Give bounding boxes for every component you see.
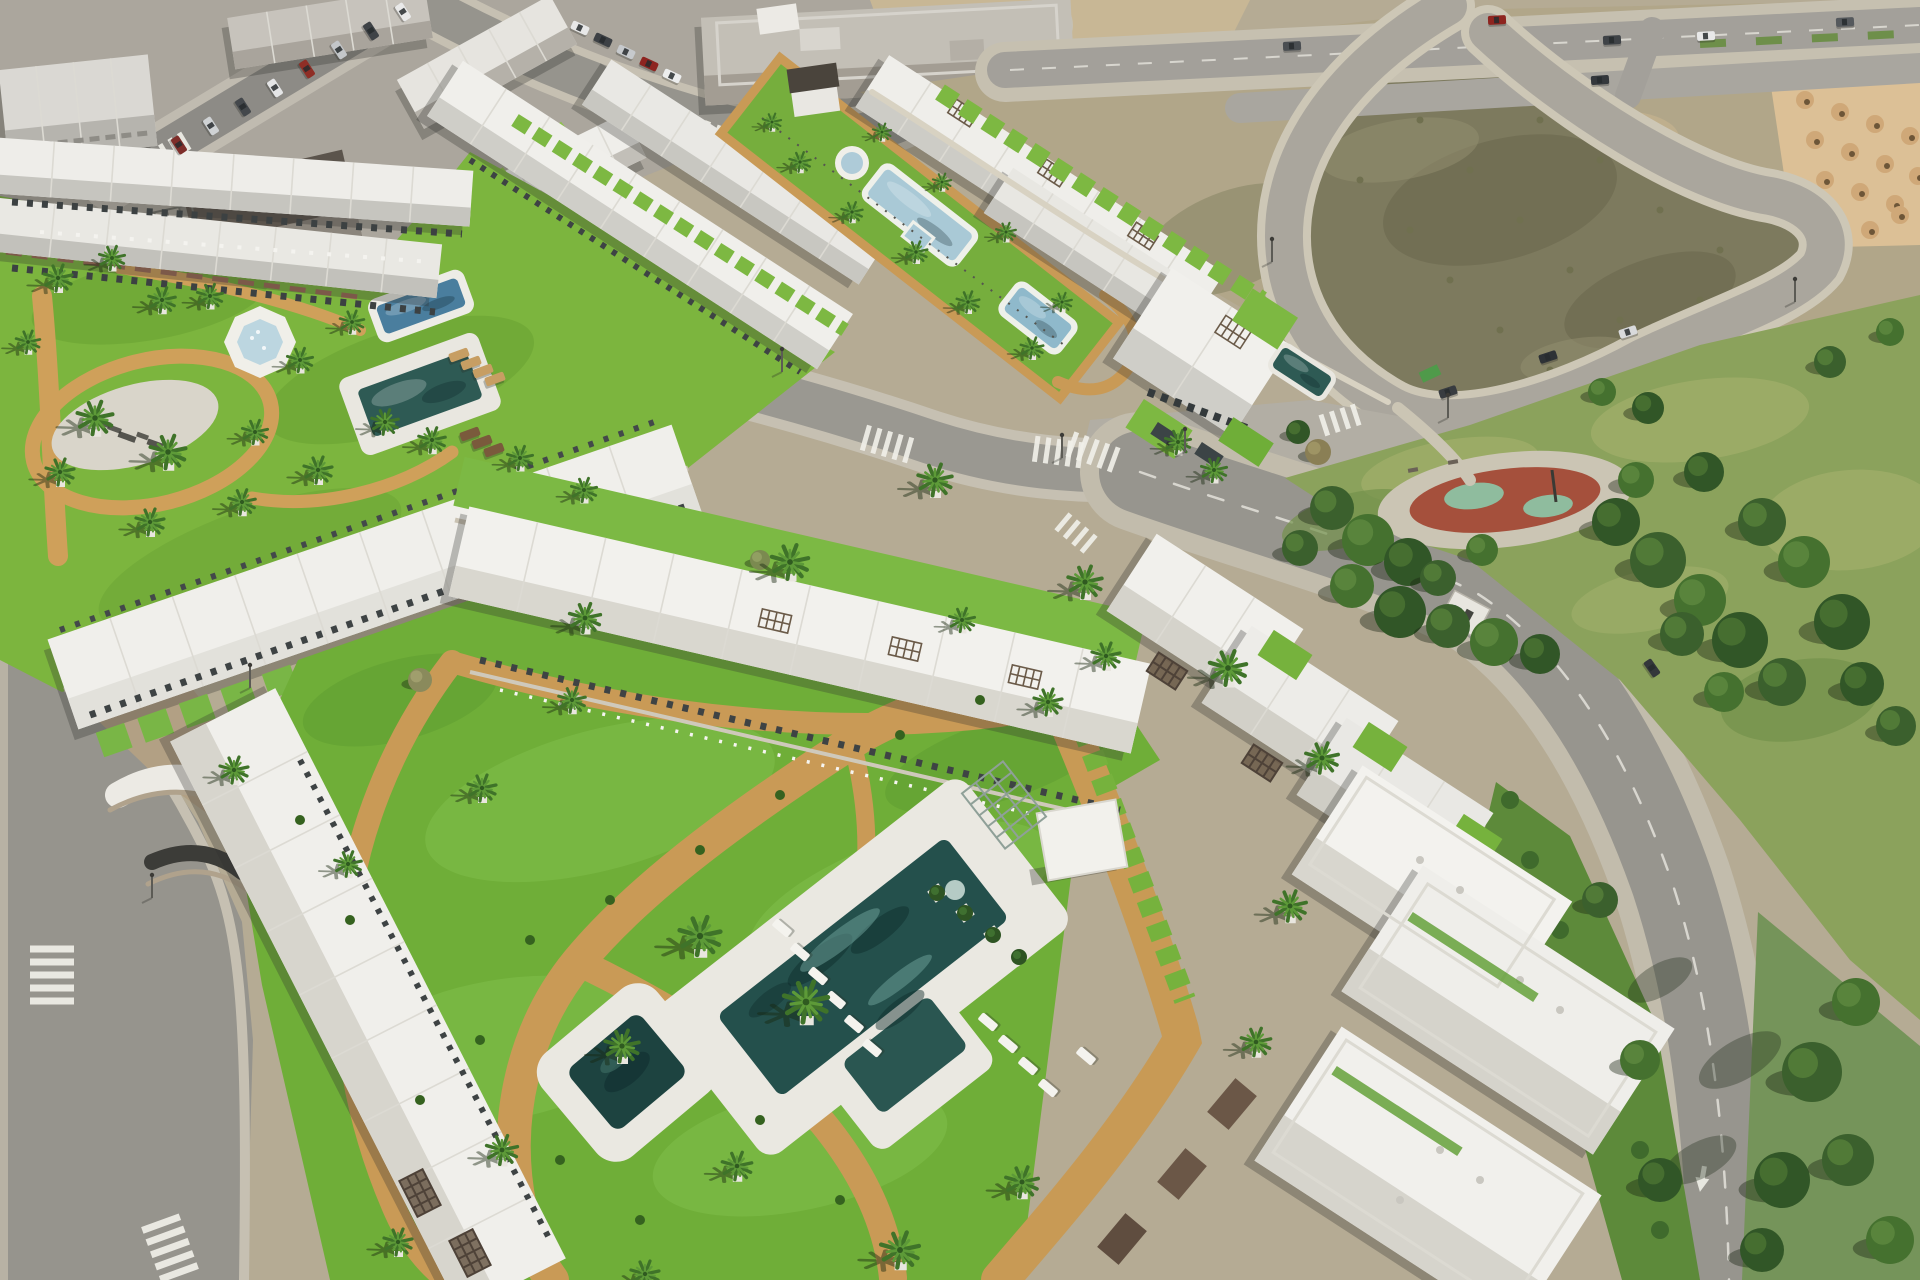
parked-car [1697,31,1716,43]
pool-steps [945,880,965,900]
parked-car [1836,17,1855,29]
parked-car [1591,75,1610,87]
white-shed [756,3,799,34]
pool-kiosk-cube [1037,800,1128,881]
round-fountain-water [841,152,863,174]
parked-car [1603,35,1622,47]
rooftop-unit [799,27,840,51]
aerial-development-render [0,0,1920,1280]
parked-car [1283,41,1302,53]
parked-car [1488,15,1507,27]
aerial-render-stage [0,0,1920,1280]
